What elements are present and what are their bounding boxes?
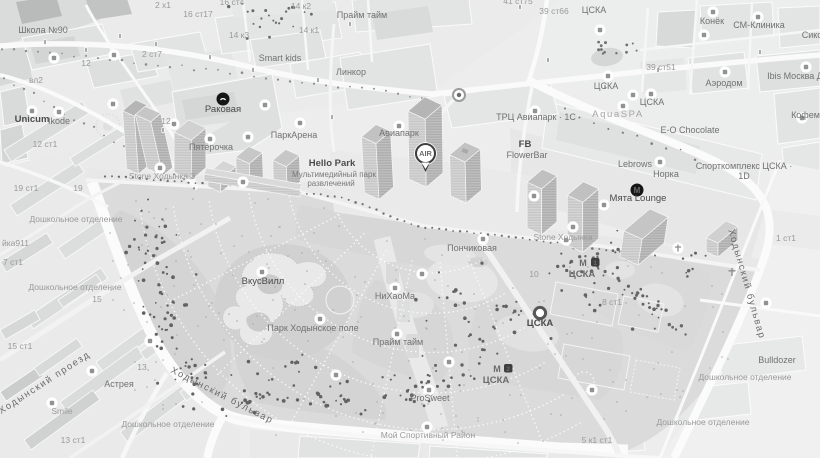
svg-text:2: 2 xyxy=(506,366,510,373)
svg-text:19 ст1: 19 ст1 xyxy=(14,183,39,193)
svg-text:Дошкольное отделение: Дошкольное отделение xyxy=(656,417,749,427)
svg-text:ЦСКА: ЦСКА xyxy=(640,97,664,107)
svg-text:Конёк: Конёк xyxy=(700,16,724,26)
svg-text:Дошкольное отделение: Дошкольное отделение xyxy=(698,372,791,382)
svg-text:Smile: Smile xyxy=(51,406,73,416)
svg-text:Школа №90: Школа №90 xyxy=(18,25,68,35)
svg-text:12: 12 xyxy=(81,58,91,68)
svg-text:Прайм тайм: Прайм тайм xyxy=(337,10,387,20)
svg-text:2 ст7: 2 ст7 xyxy=(142,49,162,59)
svg-text:М: М xyxy=(579,258,587,268)
svg-text:Спорткомплекс ЦСКА ·: Спорткомплекс ЦСКА · xyxy=(696,161,793,171)
svg-text:1D: 1D xyxy=(738,171,750,181)
svg-text:13: 13 xyxy=(137,362,147,372)
svg-text:НиХаоМа: НиХаоМа xyxy=(375,291,415,301)
svg-text:ЦСКА: ЦСКА xyxy=(594,81,618,91)
svg-text:Парк Ходынское поле: Парк Ходынское поле xyxy=(267,323,358,333)
svg-text:Астрея: Астрея xyxy=(104,379,134,389)
svg-text:FlowerBar: FlowerBar xyxy=(506,150,547,160)
svg-text:ProSweet: ProSweet xyxy=(410,393,450,403)
svg-text:5 к1 ст1: 5 к1 ст1 xyxy=(582,435,613,445)
svg-text:1 ст1: 1 ст1 xyxy=(776,233,796,243)
svg-text:ТРЦ Авиапарк · 1С: ТРЦ Авиапарк · 1С xyxy=(496,112,576,122)
svg-text:Ibis Москва Д: Ibis Москва Д xyxy=(767,71,820,81)
svg-text:19: 19 xyxy=(73,183,83,193)
svg-text:AIR: AIR xyxy=(419,149,432,158)
svg-text:E-O Chocolate: E-O Chocolate xyxy=(660,125,719,135)
svg-text:Кофема: Кофема xyxy=(791,110,820,120)
svg-text:Прайм тайм: Прайм тайм xyxy=(373,337,423,347)
svg-text:41 ст75: 41 ст75 xyxy=(503,0,533,6)
svg-text:1: 1 xyxy=(593,260,597,267)
svg-text:Авиапарк: Авиапарк xyxy=(379,128,419,138)
svg-text:Hello Park: Hello Park xyxy=(309,158,356,169)
svg-text:йка911: йка911 xyxy=(2,238,29,248)
svg-text:Норка: Норка xyxy=(653,169,679,179)
svg-text:ЦСКА: ЦСКА xyxy=(527,318,554,329)
svg-text:2 х1: 2 х1 xyxy=(155,0,171,10)
svg-text:13 ст1: 13 ст1 xyxy=(61,435,86,445)
svg-text:39 ст66: 39 ст66 xyxy=(539,6,569,16)
svg-text:14 к1: 14 к1 xyxy=(299,25,320,35)
svg-text:развлечений: развлечений xyxy=(307,179,354,188)
svg-text:Раковая: Раковая xyxy=(205,104,241,115)
svg-text:ЦСКА: ЦСКА xyxy=(582,5,606,15)
svg-text:16 ст17: 16 ст17 xyxy=(183,9,213,19)
svg-text:ПаркАрена: ПаркАрена xyxy=(271,130,317,140)
svg-text:8 ст1: 8 ст1 xyxy=(602,297,622,307)
svg-text:39 ст51: 39 ст51 xyxy=(646,62,676,72)
svg-text:вл2: вл2 xyxy=(29,75,43,85)
svg-text:Bulldozer: Bulldozer xyxy=(758,355,796,365)
svg-text:Дошкольное отделение: Дошкольное отделение xyxy=(28,282,121,292)
svg-text:15: 15 xyxy=(92,294,102,304)
svg-text:Ikode: Ikode xyxy=(48,116,70,126)
svg-text:AquaSPA: AquaSPA xyxy=(592,109,644,120)
svg-text:Аэродом: Аэродом xyxy=(705,78,742,88)
svg-text:Сико: Сико xyxy=(802,30,820,40)
svg-text:14 к3: 14 к3 xyxy=(229,30,250,40)
svg-text:ЦСКА: ЦСКА xyxy=(483,375,510,386)
svg-text:14 к2: 14 к2 xyxy=(291,1,312,11)
svg-text:7 ст1: 7 ст1 xyxy=(3,257,23,267)
svg-text:12 ст1: 12 ст1 xyxy=(33,139,58,149)
svg-text:Мой Спортивный Район: Мой Спортивный Район xyxy=(381,430,476,440)
svg-text:Stone Ходынка 3: Stone Ходынка 3 xyxy=(129,171,195,181)
svg-text:ЦСКА: ЦСКА xyxy=(569,269,596,280)
svg-text:FB: FB xyxy=(519,139,532,150)
svg-text:Пятёрочка: Пятёрочка xyxy=(189,142,233,152)
svg-text:Дошкольное отделение: Дошкольное отделение xyxy=(29,214,122,224)
svg-text:10: 10 xyxy=(529,269,539,279)
svg-text:Smart kids: Smart kids xyxy=(259,53,302,63)
svg-text:Линкор: Линкор xyxy=(336,67,366,77)
svg-text:Stone Ходынка: Stone Ходынка xyxy=(533,232,592,242)
svg-text:16 ст4: 16 ст4 xyxy=(220,0,245,7)
svg-text:Unicum: Unicum xyxy=(15,114,50,125)
svg-text:Lebrows: Lebrows xyxy=(618,159,653,169)
svg-text:СМ-Клиника: СМ-Клиника xyxy=(733,20,785,30)
svg-text:Мультимедийный парк: Мультимедийный парк xyxy=(292,170,376,179)
svg-text:12: 12 xyxy=(161,116,171,126)
svg-text:Пончиковая: Пончиковая xyxy=(447,243,497,253)
svg-text:ВкусВилл: ВкусВилл xyxy=(242,276,285,287)
svg-text:М: М xyxy=(493,364,501,374)
svg-text:Мята Lounge: Мята Lounge xyxy=(610,193,667,204)
svg-text:Дошкольное отделение: Дошкольное отделение xyxy=(121,419,214,429)
svg-text:15 ст1: 15 ст1 xyxy=(8,341,33,351)
